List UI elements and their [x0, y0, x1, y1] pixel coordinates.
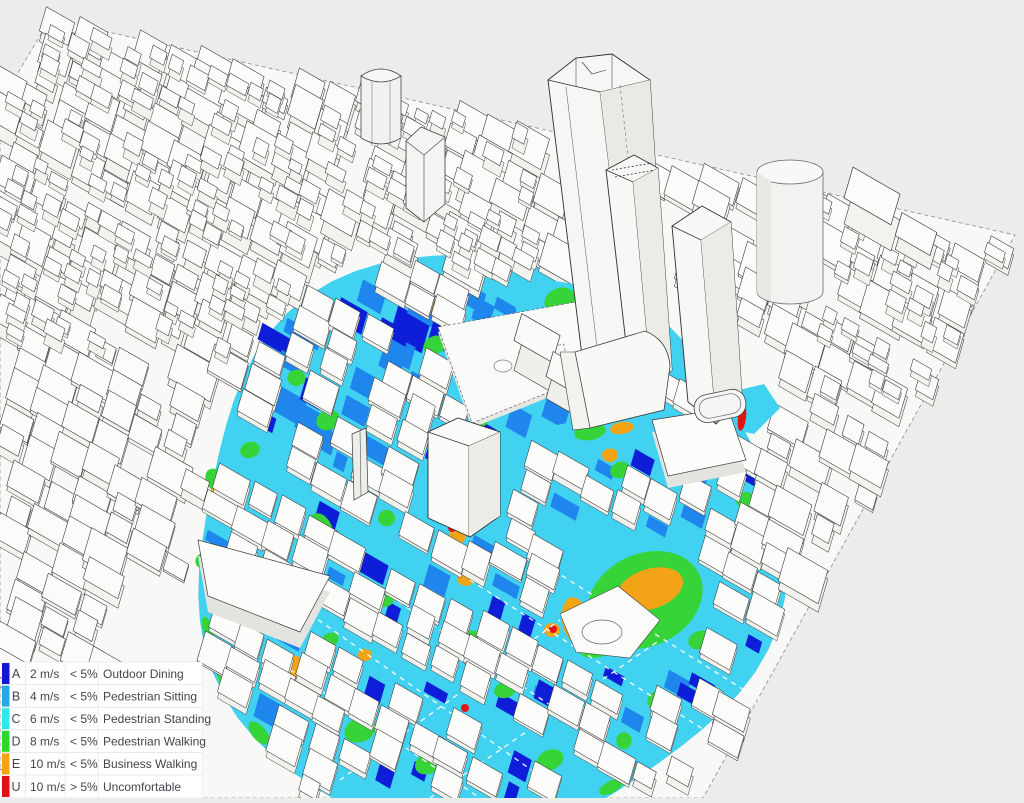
- svg-text:4 m/s: 4 m/s: [30, 689, 59, 703]
- svg-text:< 5%: < 5%: [70, 757, 98, 771]
- svg-text:Pedestrian Walking: Pedestrian Walking: [103, 735, 206, 749]
- svg-text:Uncomfortable: Uncomfortable: [103, 780, 181, 794]
- svg-text:Business Walking: Business Walking: [103, 757, 197, 771]
- svg-text:B: B: [12, 689, 20, 703]
- svg-text:< 5%: < 5%: [70, 735, 98, 749]
- svg-text:Pedestrian Standing: Pedestrian Standing: [103, 712, 211, 726]
- svg-text:> 5%: > 5%: [70, 780, 98, 794]
- svg-text:< 5%: < 5%: [70, 667, 98, 681]
- svg-text:10 m/s: 10 m/s: [30, 780, 66, 794]
- svg-text:E: E: [12, 757, 20, 771]
- svg-text:A: A: [12, 667, 21, 681]
- svg-text:U: U: [11, 780, 20, 794]
- svg-text:Outdoor Dining: Outdoor Dining: [103, 667, 184, 681]
- svg-text:< 5%: < 5%: [70, 689, 98, 703]
- svg-text:< 5%: < 5%: [70, 712, 98, 726]
- svg-text:D: D: [11, 735, 20, 749]
- svg-text:Pedestrian Sitting: Pedestrian Sitting: [103, 689, 197, 703]
- svg-text:8 m/s: 8 m/s: [30, 735, 59, 749]
- svg-text:10 m/s: 10 m/s: [30, 757, 66, 771]
- svg-text:6 m/s: 6 m/s: [30, 712, 59, 726]
- svg-text:C: C: [11, 712, 20, 726]
- svg-text:2 m/s: 2 m/s: [30, 667, 59, 681]
